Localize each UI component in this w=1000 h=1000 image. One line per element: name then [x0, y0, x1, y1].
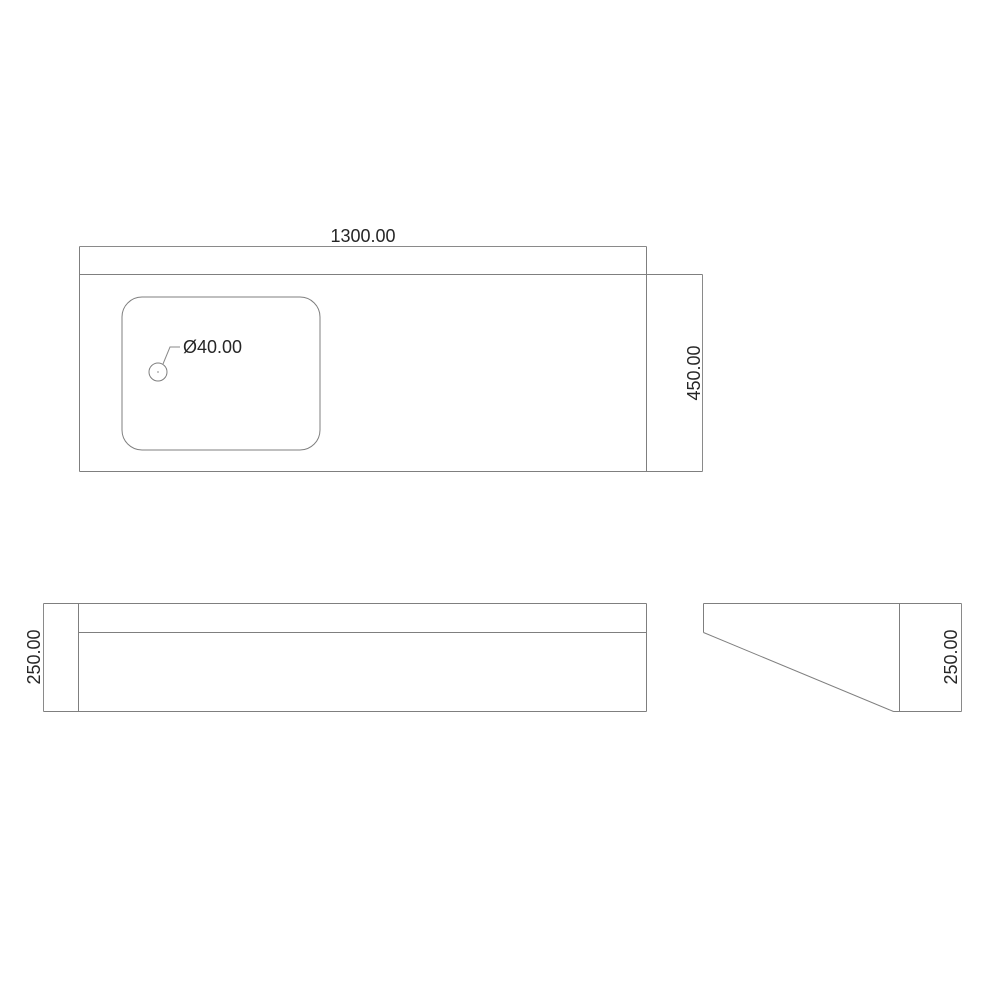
- top-view: Ø40.00 1300.00 450.00: [80, 226, 705, 472]
- front-height-dimension-label: 250.00: [24, 629, 44, 684]
- cad-drawing: Ø40.00 1300.00 450.00 250.00: [0, 0, 1000, 1000]
- drain-hole-center-mark: [157, 371, 159, 373]
- depth-dimension-label: 450.00: [684, 345, 704, 400]
- drawing-canvas: Ø40.00 1300.00 450.00 250.00: [0, 0, 1000, 1000]
- drain-hole-dimension-label: Ø40.00: [183, 337, 242, 357]
- front-view: 250.00: [24, 604, 647, 712]
- side-view-sloped-underside: [704, 633, 894, 712]
- basin-cutout-outline: [122, 297, 320, 450]
- side-height-dimension-label: 250.00: [941, 629, 961, 684]
- drain-hole-leader-line: [163, 347, 180, 364]
- side-view: 250.00: [704, 604, 962, 712]
- width-dimension-label: 1300.00: [330, 226, 395, 246]
